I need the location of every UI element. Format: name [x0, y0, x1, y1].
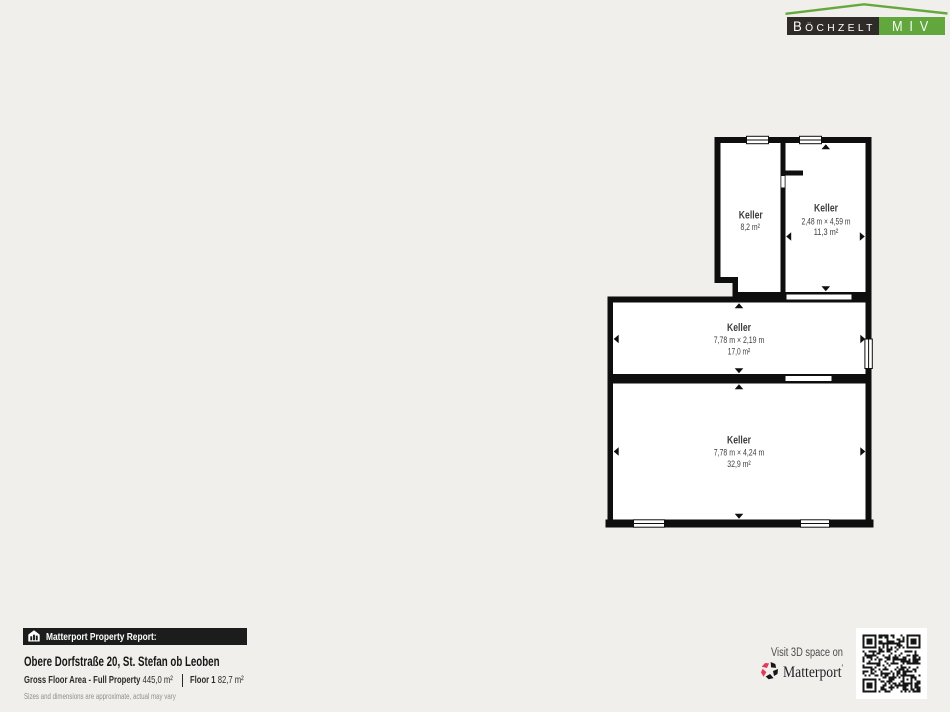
svg-text:Keller: Keller: [814, 203, 839, 215]
svg-text:11,3 m²: 11,3 m²: [814, 227, 839, 238]
svg-text:17,0 m²: 17,0 m²: [728, 347, 751, 358]
svg-text:2,48 m × 4,59 m: 2,48 m × 4,59 m: [802, 217, 851, 228]
svg-text:Keller: Keller: [727, 435, 752, 447]
svg-text:8,2 m²: 8,2 m²: [740, 222, 760, 233]
svg-text:7,78 m × 2,19 m: 7,78 m × 2,19 m: [714, 335, 765, 346]
svg-text:32,9 m²: 32,9 m²: [727, 459, 751, 470]
svg-text:7,78 m × 4,24 m: 7,78 m × 4,24 m: [714, 448, 765, 459]
svg-text:Keller: Keller: [739, 209, 764, 221]
svg-text:Keller: Keller: [727, 322, 752, 334]
